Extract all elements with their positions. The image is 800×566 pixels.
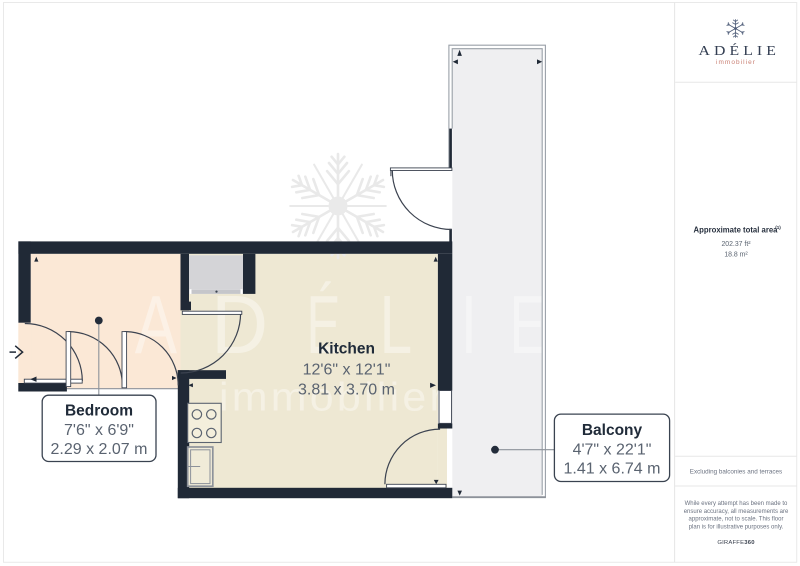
svg-text:Bedroom: Bedroom — [65, 403, 133, 420]
svg-text:202.37 ft²: 202.37 ft² — [721, 241, 751, 248]
svg-text:E: E — [510, 278, 546, 371]
svg-text:2.29 x 2.07 m: 2.29 x 2.07 m — [51, 441, 148, 458]
svg-text:4'7" x 22'1": 4'7" x 22'1" — [573, 442, 652, 459]
svg-text:While every attempt has been m: While every attempt has been made to — [685, 501, 788, 507]
svg-text:approximate, not to scale. Thi: approximate, not to scale. This floor — [689, 517, 784, 523]
svg-text:I: I — [461, 278, 477, 371]
svg-text:A: A — [135, 278, 178, 371]
svg-text:7'6" x 6'9": 7'6" x 6'9" — [64, 422, 134, 439]
svg-text:GIRAFFE360: GIRAFFE360 — [717, 540, 755, 546]
svg-text:1.41 x 6.74 m: 1.41 x 6.74 m — [564, 460, 661, 477]
svg-text:18.8 m²: 18.8 m² — [724, 252, 748, 259]
svg-text:Excluding balconies and terrac: Excluding balconies and terraces — [690, 469, 782, 476]
svg-text:L: L — [380, 278, 413, 371]
svg-text:Balcony: Balcony — [582, 422, 643, 439]
svg-text:ADÉLIE: ADÉLIE — [699, 43, 781, 58]
svg-text:Approximate total area: Approximate total area — [694, 226, 779, 235]
svg-text:(1): (1) — [775, 225, 781, 230]
svg-text:3.81 x 3.70 m: 3.81 x 3.70 m — [298, 382, 395, 399]
svg-text:plan is for illustrative purpo: plan is for illustrative purposes only. — [689, 524, 784, 530]
svg-text:immobilier: immobilier — [716, 59, 756, 66]
svg-text:ensure accuracy, all measureme: ensure accuracy, all measurements are — [684, 509, 789, 515]
svg-text:12'6" x 12'1": 12'6" x 12'1" — [303, 362, 391, 379]
svg-text:Kitchen: Kitchen — [318, 341, 375, 358]
